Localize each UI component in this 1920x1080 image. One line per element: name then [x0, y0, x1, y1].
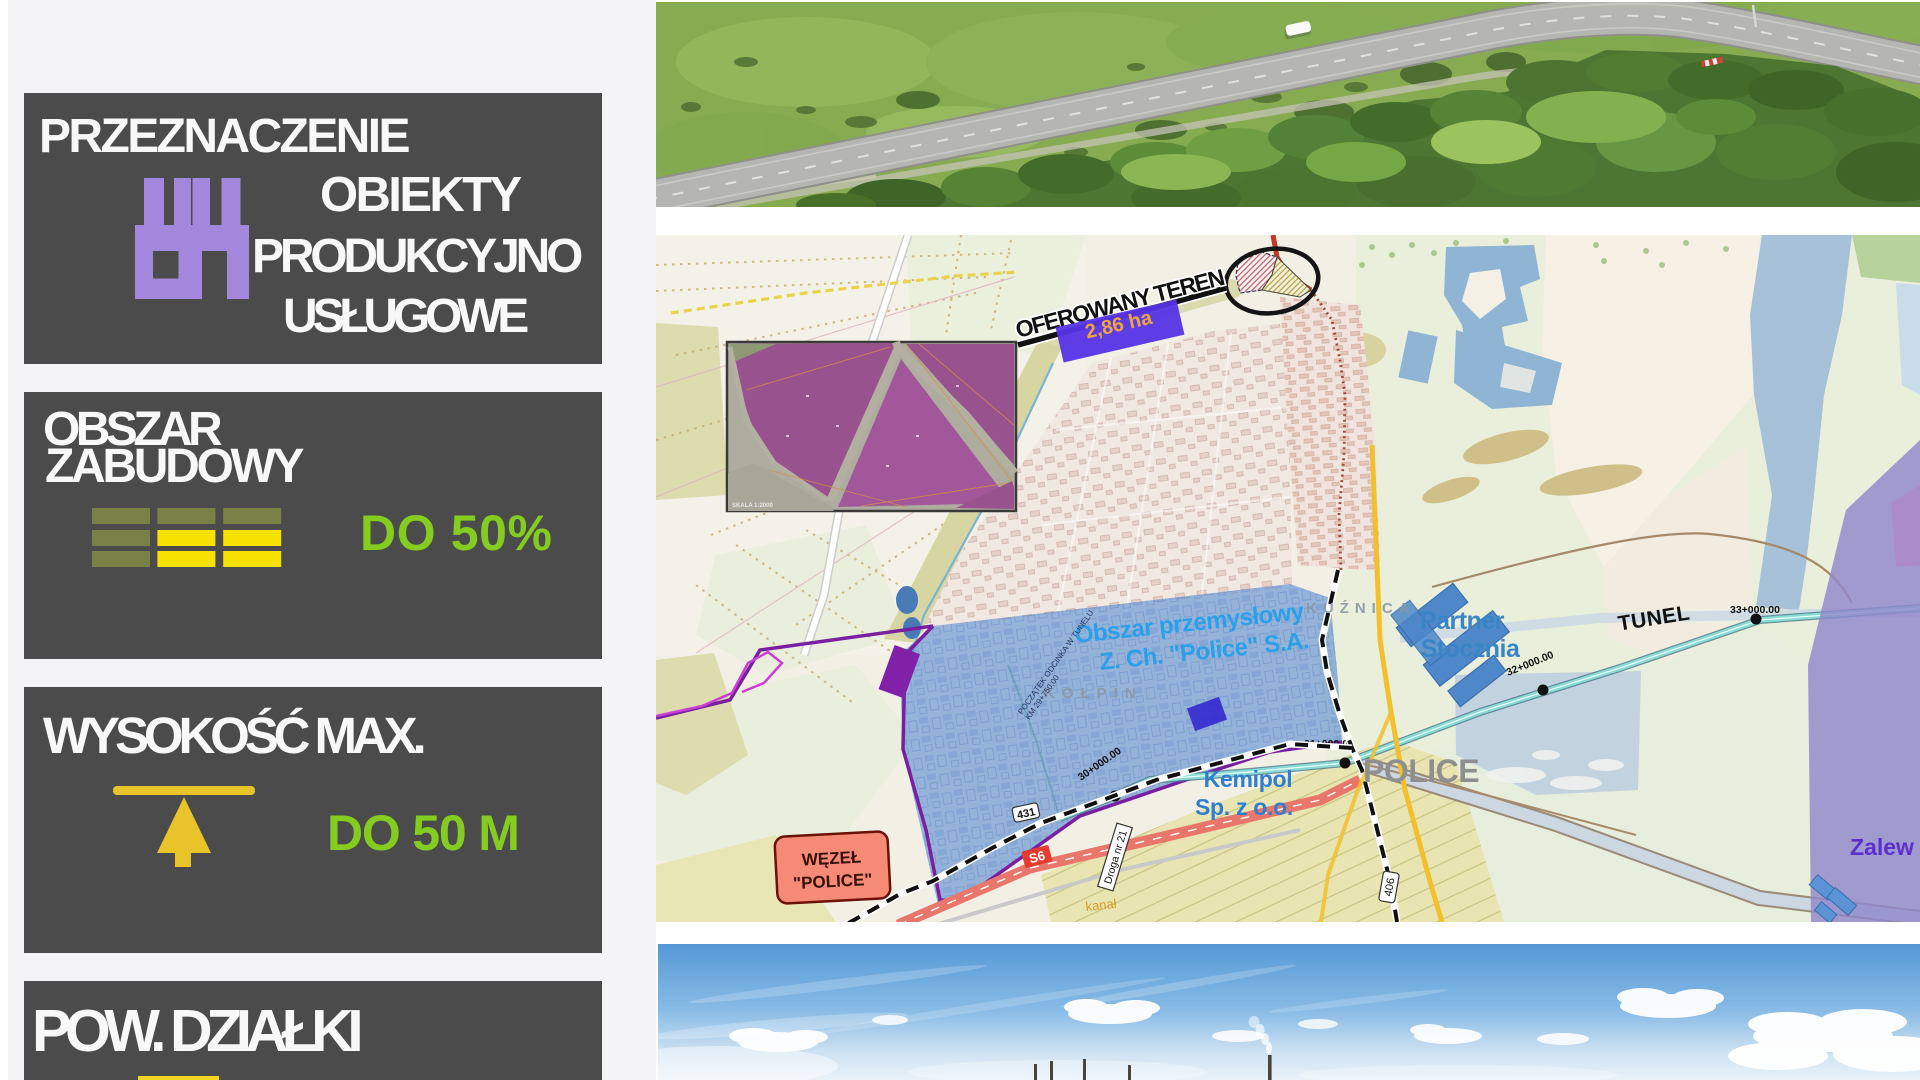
- svg-text:POLICE: POLICE: [1363, 753, 1479, 789]
- svg-text:WĘZEŁ: WĘZEŁ: [801, 847, 861, 869]
- svg-text:33+000.00: 33+000.00: [1730, 604, 1780, 616]
- svg-text:Partner: Partner: [1420, 607, 1505, 635]
- svg-text:SKALA 1:2000: SKALA 1:2000: [732, 503, 773, 509]
- svg-text:Sp. z o.o.: Sp. z o.o.: [1195, 794, 1293, 820]
- svg-text:KOŁPIN: KOŁPIN: [1044, 685, 1143, 702]
- svg-text:Kemipol: Kemipol: [1204, 766, 1293, 792]
- svg-text:Stocznia: Stocznia: [1421, 635, 1521, 663]
- svg-text:KUŹNICA: KUŹNICA: [1306, 600, 1416, 617]
- svg-text:Zalew: Zalew: [1850, 834, 1914, 860]
